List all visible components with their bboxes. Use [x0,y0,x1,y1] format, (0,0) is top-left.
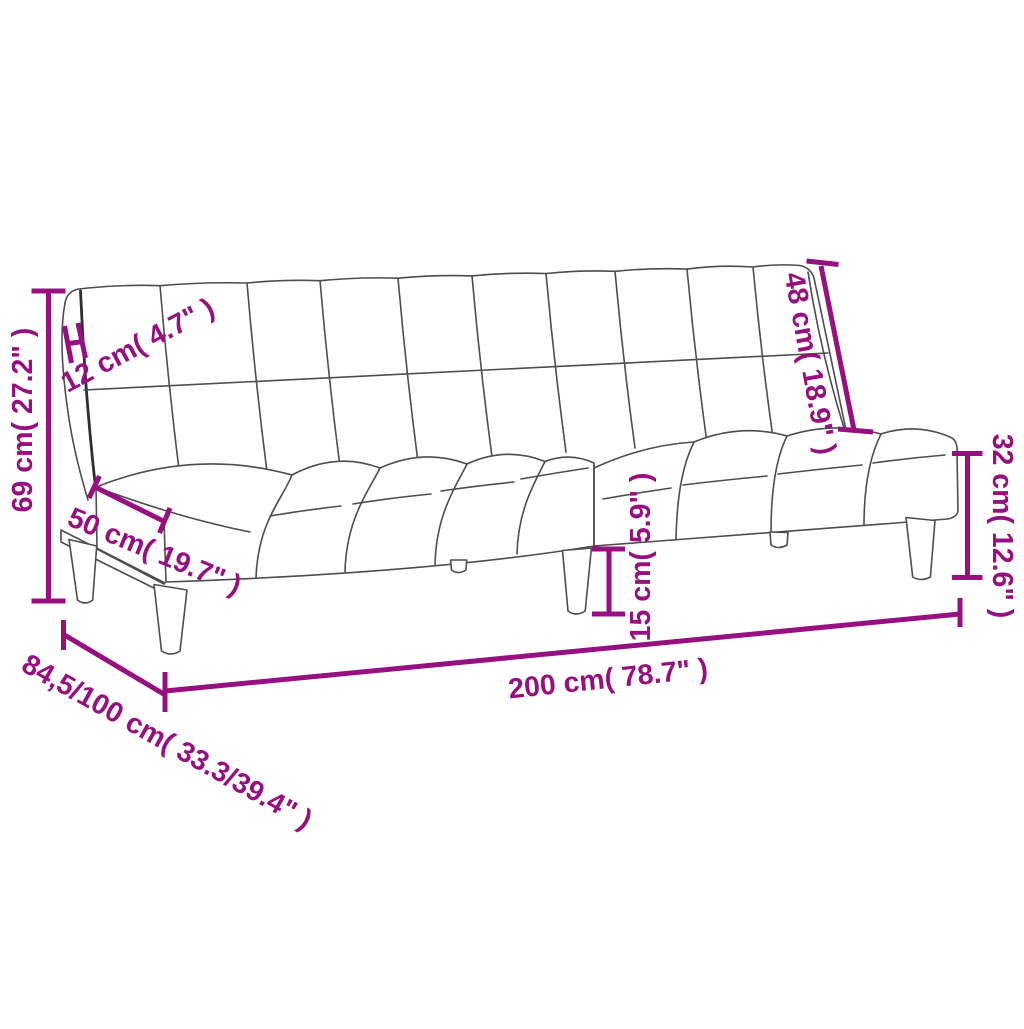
svg-text:200 cm( 78.7" ): 200 cm( 78.7" ) [507,653,710,706]
svg-text:32 cm( 12.6" ): 32 cm( 12.6" ) [986,434,1018,619]
svg-text:15 cm( 5.9" ): 15 cm( 5.9" ) [625,473,657,642]
svg-text:69 cm( 27.2" ): 69 cm( 27.2" ) [7,328,39,513]
